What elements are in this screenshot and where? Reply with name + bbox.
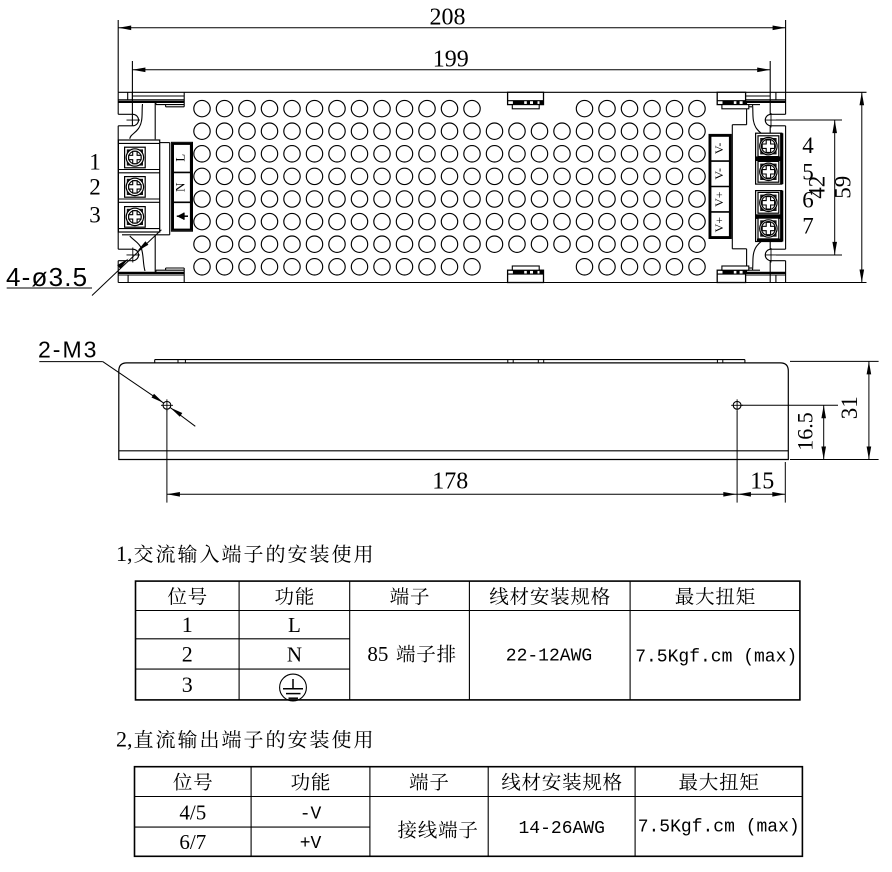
- svg-text:85: 85: [367, 642, 388, 666]
- svg-text:16.5: 16.5: [793, 412, 818, 451]
- svg-text:1: 1: [182, 612, 193, 637]
- svg-text:42: 42: [805, 176, 830, 199]
- svg-text:6/7: 6/7: [179, 830, 206, 854]
- svg-text:-V: -V: [300, 805, 322, 825]
- svg-text:4-ø3.5: 4-ø3.5: [6, 262, 88, 292]
- svg-text:V+: V+: [712, 217, 726, 233]
- svg-text:L: L: [288, 613, 301, 637]
- svg-text:2,: 2,: [116, 727, 133, 752]
- svg-text:7.5Kgf.cm (max): 7.5Kgf.cm (max): [635, 648, 797, 668]
- svg-text:199: 199: [433, 46, 469, 72]
- svg-text:1: 1: [89, 150, 101, 175]
- svg-text:N: N: [173, 182, 188, 192]
- svg-text:2: 2: [89, 175, 101, 200]
- svg-text:L: L: [173, 154, 188, 162]
- svg-text:N: N: [287, 643, 302, 667]
- svg-text:2: 2: [182, 642, 193, 667]
- svg-text:3: 3: [182, 672, 193, 697]
- svg-text:22-12AWG: 22-12AWG: [506, 647, 592, 667]
- svg-text:V-: V-: [712, 143, 726, 155]
- svg-text:V+: V+: [712, 191, 726, 207]
- svg-text:208: 208: [430, 4, 466, 30]
- svg-text:15: 15: [750, 469, 774, 495]
- svg-text:14-26AWG: 14-26AWG: [518, 819, 604, 839]
- svg-text:4: 4: [802, 133, 814, 158]
- svg-text:V-: V-: [712, 168, 726, 180]
- svg-text:4/5: 4/5: [179, 801, 206, 825]
- svg-text:7: 7: [802, 213, 814, 238]
- svg-text:31: 31: [837, 396, 862, 419]
- svg-text:+V: +V: [300, 834, 322, 854]
- svg-text:7.5Kgf.cm (max): 7.5Kgf.cm (max): [638, 818, 800, 838]
- svg-text:178: 178: [432, 469, 468, 495]
- svg-text:1,: 1,: [116, 541, 133, 566]
- svg-text:2-M3: 2-M3: [38, 337, 98, 363]
- svg-text:3: 3: [89, 203, 101, 228]
